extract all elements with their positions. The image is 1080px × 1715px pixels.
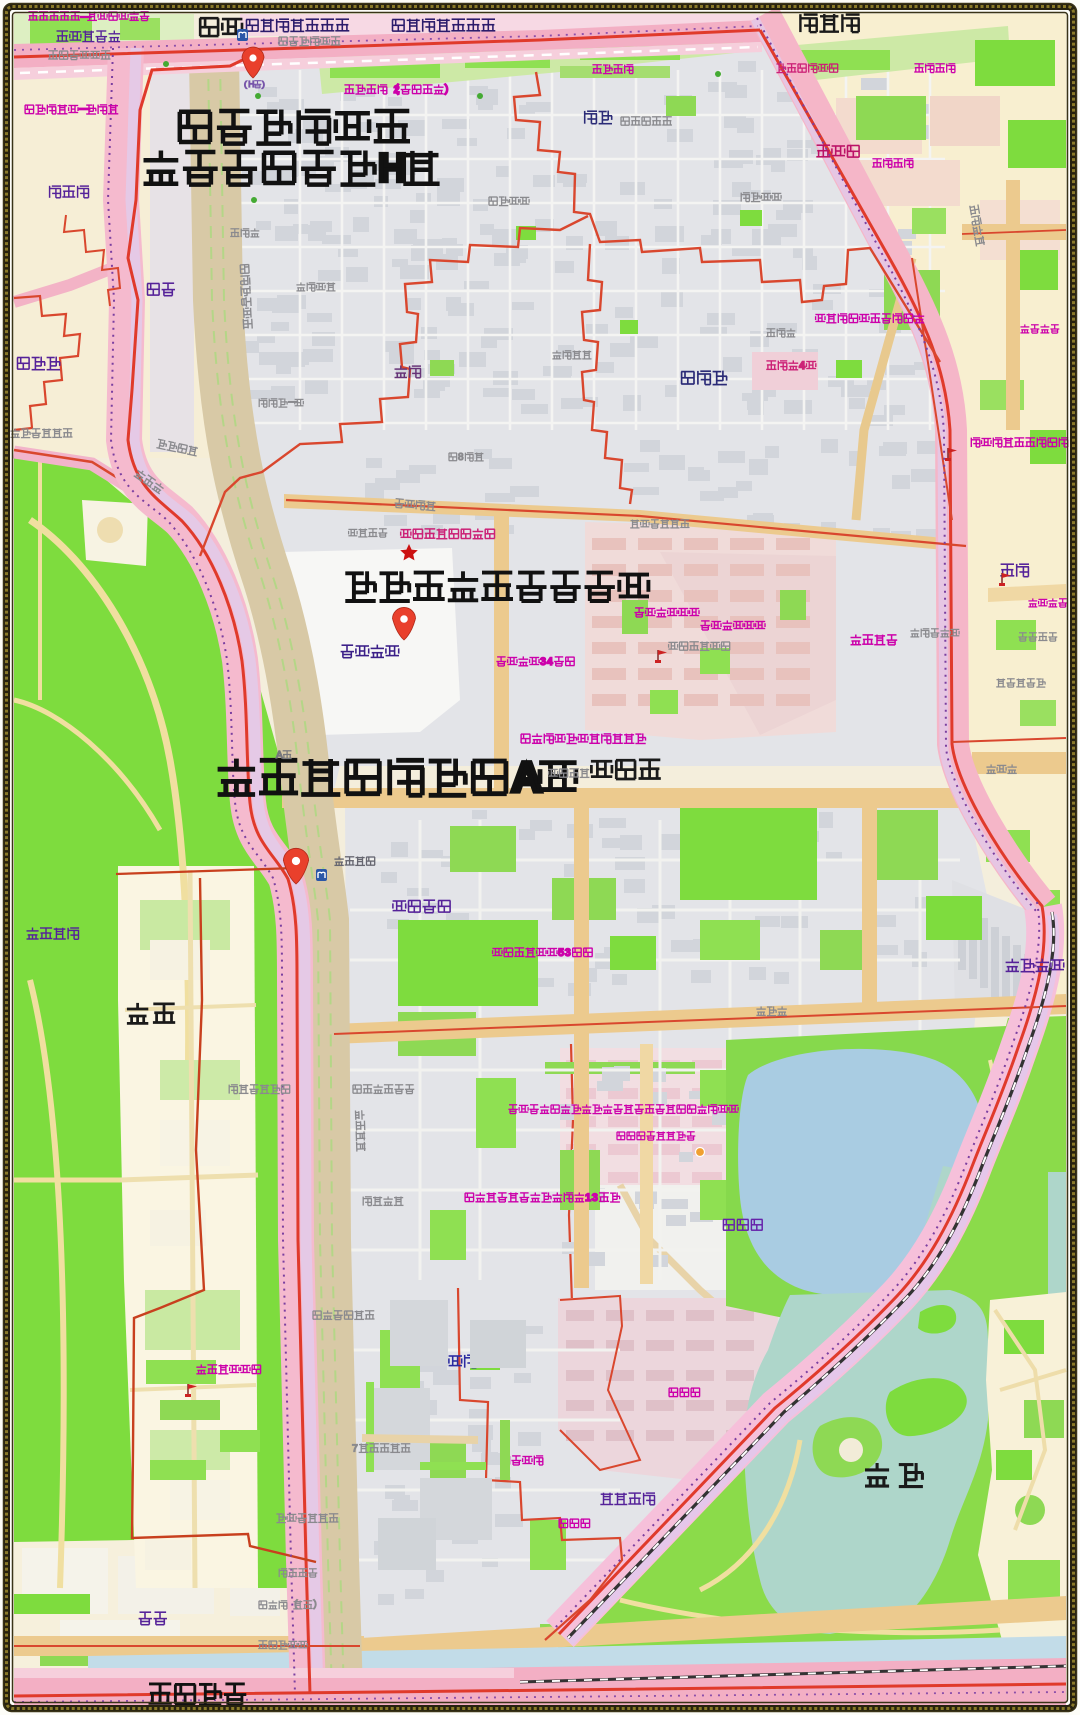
svg-text:1: 1 bbox=[585, 1192, 591, 1204]
svg-text:7: 7 bbox=[352, 1443, 358, 1455]
svg-text:3: 3 bbox=[540, 656, 546, 668]
svg-text:）: ） bbox=[444, 83, 455, 96]
svg-text:3: 3 bbox=[565, 947, 571, 959]
svg-text:4: 4 bbox=[799, 360, 806, 372]
svg-text:): ) bbox=[262, 79, 265, 89]
svg-text:5: 5 bbox=[558, 947, 564, 959]
svg-text:A: A bbox=[276, 750, 283, 761]
svg-text:4: 4 bbox=[547, 656, 554, 668]
svg-text:A: A bbox=[512, 753, 542, 800]
svg-text:）: ） bbox=[313, 1599, 323, 1611]
svg-text:8: 8 bbox=[458, 452, 464, 463]
svg-text:H: H bbox=[248, 79, 254, 89]
svg-text:H: H bbox=[378, 147, 406, 190]
svg-text:(: ( bbox=[244, 79, 247, 89]
svg-text:2: 2 bbox=[394, 84, 400, 96]
svg-text:3: 3 bbox=[592, 1192, 598, 1204]
